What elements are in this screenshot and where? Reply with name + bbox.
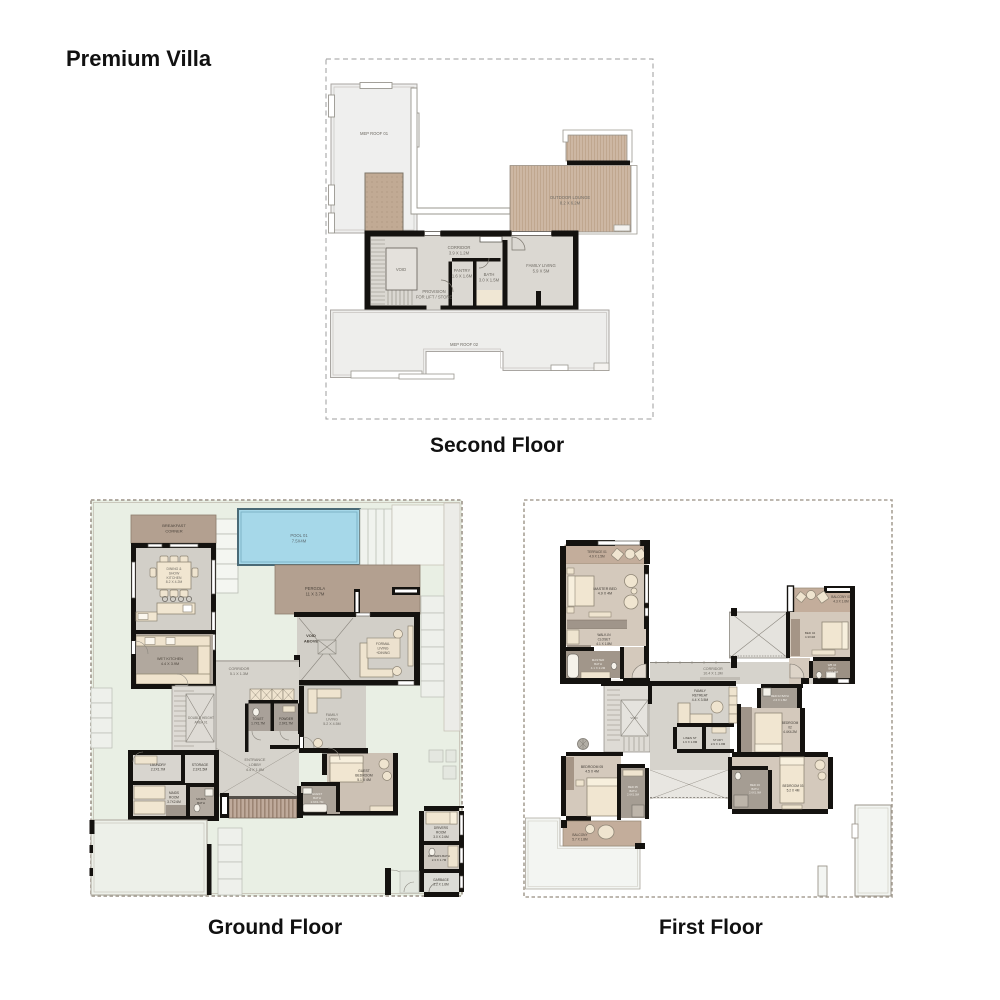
svg-text:MAIDS: MAIDS xyxy=(169,791,179,795)
svg-text:VOID: VOID xyxy=(396,267,406,272)
svg-text:DINING &: DINING & xyxy=(166,567,182,571)
svg-text:5.2 X 4M: 5.2 X 4M xyxy=(787,788,800,792)
svg-text:POOL 01: POOL 01 xyxy=(290,533,308,538)
svg-text:4.3 X 1.6M: 4.3 X 1.6M xyxy=(833,599,849,603)
svg-text:FAMILY: FAMILY xyxy=(326,713,339,717)
svg-text:ROOM: ROOM xyxy=(169,795,179,799)
svg-text:BEDROOM: BEDROOM xyxy=(355,773,373,777)
svg-text:BATH: BATH xyxy=(484,272,495,277)
svg-text:1.6 X 1.6M: 1.6 X 1.6M xyxy=(452,274,473,279)
svg-text:BEDROOM 03: BEDROOM 03 xyxy=(783,784,804,788)
svg-text:LOBBY: LOBBY xyxy=(249,763,262,767)
svg-text:FOR LIFT / STORE: FOR LIFT / STORE xyxy=(416,295,453,300)
svg-text:7.5X4M: 7.5X4M xyxy=(292,539,307,544)
svg-text:MASTER BED: MASTER BED xyxy=(593,587,617,591)
svg-text:5.9 X 5M: 5.9 X 5M xyxy=(533,269,550,274)
svg-text:2.3X1.5M: 2.3X1.5M xyxy=(193,767,208,771)
svg-text:2.9 X 1.8M: 2.9 X 1.8M xyxy=(711,742,726,746)
svg-text:BALCONY 01: BALCONY 01 xyxy=(831,595,851,599)
svg-text:2.6X1.5M: 2.6X1.5M xyxy=(627,793,640,797)
svg-text:4.9 X 4M: 4.9 X 4M xyxy=(598,592,612,596)
svg-text:FAMILY: FAMILY xyxy=(694,689,707,693)
svg-text:VOID: VOID xyxy=(306,633,316,638)
svg-text:3.9 X 1.2M: 3.9 X 1.2M xyxy=(449,251,470,256)
svg-text:GUEST: GUEST xyxy=(358,769,370,773)
svg-text:WET KITCHEN: WET KITCHEN xyxy=(157,657,183,661)
svg-text:VOID: VOID xyxy=(630,716,638,720)
svg-text:RETREAT: RETREAT xyxy=(692,693,708,697)
svg-text:4.1 X 1.8M: 4.1 X 1.8M xyxy=(596,642,612,646)
svg-text:ROOM: ROOM xyxy=(436,830,446,834)
svg-text:PERGOLA: PERGOLA xyxy=(305,586,325,591)
svg-text:MEP ROOF 02: MEP ROOF 02 xyxy=(450,342,479,347)
svg-text:FAMILY LIVING: FAMILY LIVING xyxy=(526,263,555,268)
svg-text:PROVISION: PROVISION xyxy=(422,289,445,294)
svg-text:8.2 X 4.2M: 8.2 X 4.2M xyxy=(166,580,183,584)
svg-text:PANTRY: PANTRY xyxy=(454,268,471,273)
svg-text:2.9X1.7M: 2.9X1.7M xyxy=(279,721,293,725)
svg-text:POWDER: POWDER xyxy=(279,717,294,721)
svg-text:OUTDOOR LOUNGE: OUTDOOR LOUNGE xyxy=(550,195,590,200)
svg-text:8.2 X 6.2M: 8.2 X 6.2M xyxy=(560,201,581,206)
svg-text:DRIVERS: DRIVERS xyxy=(434,826,448,830)
svg-text:4.3X4M: 4.3X4M xyxy=(805,635,816,639)
svg-text:4.4X4.2M: 4.4X4.2M xyxy=(783,730,797,734)
svg-text:CORRIDOR: CORRIDOR xyxy=(703,667,723,671)
svg-text:4.9 X 1.5M: 4.9 X 1.5M xyxy=(589,554,605,558)
svg-text:10.4 X 1.3M: 10.4 X 1.3M xyxy=(703,672,722,676)
svg-text:BALCONY: BALCONY xyxy=(572,833,588,837)
svg-text:3.0 X 1.5M: 3.0 X 1.5M xyxy=(479,278,500,283)
svg-text:SHOW: SHOW xyxy=(169,571,180,575)
svg-text:4.1 X 2.2M: 4.1 X 2.2M xyxy=(591,666,606,670)
svg-text:CLOSET: CLOSET xyxy=(598,637,611,641)
svg-text:DOUBLE HEIGHT: DOUBLE HEIGHT xyxy=(188,716,214,720)
svg-text:4.4 X 3.9M: 4.4 X 3.9M xyxy=(161,662,179,666)
svg-text:GARBAGE: GARBAGE xyxy=(433,878,449,882)
svg-text:4.5 X 4M: 4.5 X 4M xyxy=(585,769,599,773)
svg-text:02: 02 xyxy=(788,725,792,729)
svg-text:1.7X1.7M: 1.7X1.7M xyxy=(251,721,265,725)
svg-text:STORAGE: STORAGE xyxy=(192,763,209,767)
svg-text:TOILET: TOILET xyxy=(252,717,263,721)
svg-text:2.6X1.9M: 2.6X1.9M xyxy=(749,791,762,795)
svg-text:MEP ROOF 01: MEP ROOF 01 xyxy=(360,131,389,136)
svg-text:LIVING: LIVING xyxy=(326,718,338,722)
svg-text:BEDROOM 05: BEDROOM 05 xyxy=(581,765,603,769)
svg-text:LAUNDRY: LAUNDRY xyxy=(150,763,167,767)
svg-text:1.6 X 1.8M: 1.6 X 1.8M xyxy=(683,740,698,744)
svg-text:2.6X1.7M: 2.6X1.7M xyxy=(311,800,324,804)
svg-text:5.7 X 1.8M: 5.7 X 1.8M xyxy=(572,837,588,841)
svg-text:WALK-IN: WALK-IN xyxy=(597,633,611,637)
svg-text:2.6X1.8M: 2.6X1.8M xyxy=(826,670,839,674)
svg-text:BATH: BATH xyxy=(197,801,205,805)
svg-text:TERRACE 01: TERRACE 01 xyxy=(587,550,607,554)
svg-text:FORMAL: FORMAL xyxy=(376,642,390,646)
svg-text:CORRIDOR: CORRIDOR xyxy=(448,245,471,250)
svg-text:11 X 3.7M: 11 X 3.7M xyxy=(306,592,325,597)
svg-text:LIVING: LIVING xyxy=(377,647,388,651)
svg-text:5.1 X 1.3M: 5.1 X 1.3M xyxy=(230,672,248,676)
svg-text:ENTRANCE: ENTRANCE xyxy=(245,758,266,762)
svg-text:3.0 X 2.6M: 3.0 X 2.6M xyxy=(433,835,449,839)
svg-text:KITCHEN: KITCHEN xyxy=(167,576,182,580)
svg-text:2.2X1.7M: 2.2X1.7M xyxy=(151,767,166,771)
svg-text:+DINING: +DINING xyxy=(376,651,390,655)
svg-text:2.3 X 1.7M: 2.3 X 1.7M xyxy=(432,858,447,862)
svg-text:BEDROOM: BEDROOM xyxy=(782,721,799,725)
svg-text:5.2 X 4.5M: 5.2 X 4.5M xyxy=(323,722,340,726)
svg-text:ABOVE: ABOVE xyxy=(304,639,319,644)
svg-text:5.1 X 4M: 5.1 X 4M xyxy=(357,778,371,782)
svg-text:AREA 01: AREA 01 xyxy=(195,720,208,724)
svg-text:CORNER: CORNER xyxy=(165,529,182,534)
svg-text:CORRIDOR: CORRIDOR xyxy=(229,667,250,671)
svg-text:2.6 X 1.8M: 2.6 X 1.8M xyxy=(773,698,787,702)
svg-text:BREAKFAST: BREAKFAST xyxy=(162,523,186,528)
svg-text:4.4 X 3.5M: 4.4 X 3.5M xyxy=(692,698,709,702)
svg-text:3.7X2.6M: 3.7X2.6M xyxy=(167,800,181,804)
